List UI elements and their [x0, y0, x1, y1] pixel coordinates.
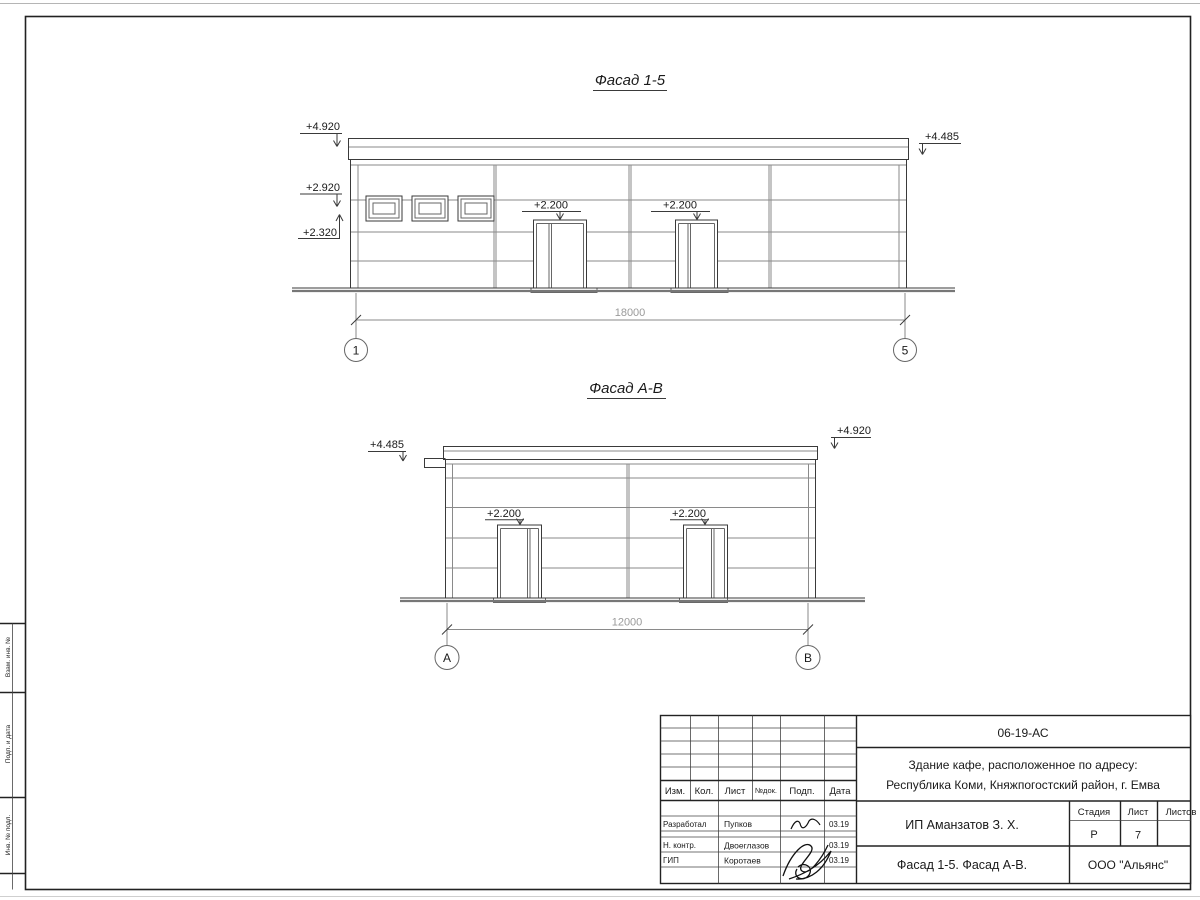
axis-marker-label: А — [443, 651, 451, 665]
client-name: ИП Аманзатов З. Х. — [905, 818, 1019, 832]
col-header-data: Дата — [829, 786, 851, 797]
ncontr-date: 03.19 — [829, 841, 850, 850]
sheet-header: Лист — [1128, 807, 1149, 818]
sheets-header: Листов — [1166, 807, 1197, 818]
svg-text:+4.920: +4.920 — [306, 121, 340, 133]
facade-a-b-dimension: 12000 А В — [435, 603, 820, 670]
svg-text:+2.200: +2.200 — [534, 200, 568, 212]
facade-1-5-walls — [351, 160, 907, 289]
col-header-ndoc: №док. — [755, 786, 777, 795]
facade-1-5-door-2 — [671, 220, 728, 293]
object-address-line2: Республика Коми, Княжпогостский район, г… — [886, 778, 1160, 792]
document-code: 06-19-АС — [997, 726, 1048, 740]
elevation-mark: +4.485 — [368, 439, 407, 461]
elevation-mark: +2.200 — [651, 200, 710, 220]
col-header-podp: Подп. — [789, 786, 814, 797]
facade-a-b-view: Фасад А-В — [368, 380, 871, 670]
dimension-value: 12000 — [612, 617, 643, 629]
elevation-mark: +2.920 — [300, 182, 342, 207]
elevation-mark: +2.320 — [298, 215, 343, 240]
facade-a-b-title: Фасад А-В — [589, 380, 663, 397]
dimension-value: 18000 — [615, 307, 646, 319]
developer-date: 03.19 — [829, 820, 850, 829]
facade-1-5-door-1 — [531, 220, 597, 293]
side-stamp: Взам. инв. № Подп. и дата Инв. № подл. — [0, 624, 26, 890]
company-name: ООО "Альянс" — [1088, 858, 1168, 872]
facade-a-b-ground-line — [400, 598, 865, 601]
facade-a-b-parapet — [443, 447, 818, 465]
gip-role: ГИП — [663, 856, 679, 865]
gip-date: 03.19 — [829, 856, 850, 865]
title-block: Изм. Кол. Лист №док. Подп. Дата Разработ… — [661, 716, 1197, 884]
axis-marker-label: 5 — [902, 344, 909, 358]
blueprint-sheet: Взам. инв. № Подп. и дата Инв. № подл. Ф… — [0, 0, 1200, 900]
svg-text:+2.200: +2.200 — [487, 508, 521, 520]
svg-text:+2.200: +2.200 — [672, 508, 706, 520]
col-header-kol: Кол. — [695, 786, 714, 797]
axis-marker-label: В — [804, 651, 812, 665]
ncontr-name: Двоеглазов — [724, 841, 770, 851]
side-stamp-label-bottom: Инв. № подл. — [5, 815, 12, 856]
stage-value: Р — [1090, 829, 1097, 841]
elevation-mark: +2.200 — [485, 508, 524, 525]
svg-text:+4.485: +4.485 — [925, 131, 959, 143]
svg-text:+2.320: +2.320 — [303, 227, 337, 239]
sheet-title: Фасад 1-5. Фасад А-В. — [897, 858, 1027, 872]
sheet-value: 7 — [1135, 830, 1141, 842]
elevation-mark: +4.920 — [831, 425, 871, 449]
facade-1-5-view: Фасад 1-5 — [292, 72, 961, 362]
object-address-line1: Здание кафе, расположенное по адресу: — [908, 758, 1137, 772]
facade-1-5-dimension: 18000 1 5 — [345, 293, 917, 362]
facade-a-b-door-2 — [680, 525, 728, 603]
col-header-list: Лист — [725, 786, 746, 797]
svg-text:+2.920: +2.920 — [306, 182, 340, 194]
svg-text:+2.200: +2.200 — [663, 200, 697, 212]
developer-role: Разработал — [663, 820, 707, 829]
gip-name: Коротаев — [724, 856, 761, 866]
stage-header: Стадия — [1078, 807, 1110, 818]
facade-1-5-ground-line — [292, 288, 955, 291]
developer-name: Пупков — [724, 819, 753, 829]
facade-1-5-windows — [366, 196, 494, 221]
drawing-canvas: Взам. инв. № Подп. и дата Инв. № подл. Ф… — [0, 0, 1200, 900]
svg-text:+4.920: +4.920 — [837, 425, 871, 437]
elevation-mark: +4.920 — [300, 121, 342, 147]
facade-1-5-title: Фасад 1-5 — [595, 72, 666, 89]
side-stamp-label-mid: Подп. и дата — [5, 724, 12, 763]
side-stamp-label-top: Взам. инв. № — [5, 637, 12, 677]
facade-a-b-elevation-marks: +4.485 +4.920 +2.200 +2.20 — [368, 425, 871, 525]
facade-a-b-vent — [424, 459, 446, 468]
axis-marker-label: 1 — [353, 344, 360, 358]
facade-a-b-door-1 — [494, 525, 546, 603]
col-header-izm: Изм. — [665, 786, 685, 797]
elevation-mark: +2.200 — [670, 508, 709, 525]
elevation-mark: +2.200 — [522, 200, 581, 220]
facade-1-5-parapet — [348, 139, 909, 166]
elevation-mark: +4.485 — [919, 131, 961, 155]
ncontr-role: Н. контр. — [663, 841, 696, 850]
svg-text:+4.485: +4.485 — [370, 439, 404, 451]
